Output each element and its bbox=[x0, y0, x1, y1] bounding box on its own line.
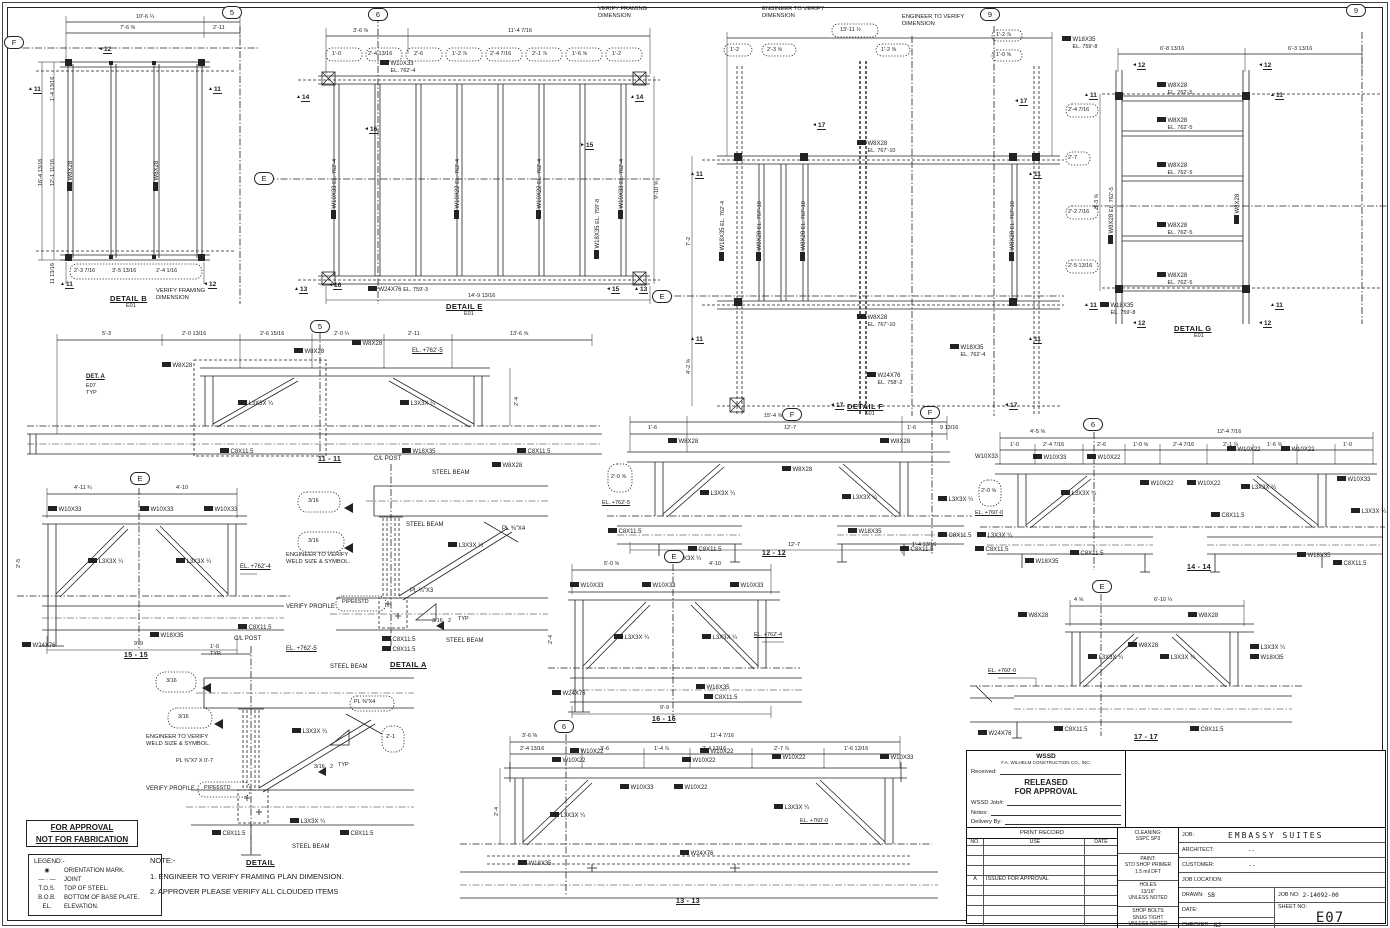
paint-cell: PAINT:STD SHOP PRIMER1.5 mil DFT bbox=[1118, 854, 1178, 880]
beam-label: W8X28 bbox=[1234, 194, 1242, 224]
weld-size-label: 3/16 bbox=[308, 538, 319, 544]
brace-label: L3X3X ¼ bbox=[88, 558, 123, 566]
beam-label: W8X28 EL. 762'-5 bbox=[1108, 187, 1116, 244]
clouded-dim: 2'-7 bbox=[1068, 155, 1077, 161]
el-abbrev: EL. bbox=[34, 903, 60, 912]
verify-profile-label: VERIFY PROFILE bbox=[146, 786, 195, 793]
dim-label: 9 13/16 bbox=[940, 425, 958, 431]
beam-label: W8X28EL. 762'-5 bbox=[1157, 117, 1192, 131]
panel-detail-f: 9 E F ENGINEER TO VERIFYDIMENSION ENGINE… bbox=[662, 6, 1064, 420]
received-blank-line bbox=[1000, 768, 1121, 775]
beam-label: W10X33 bbox=[975, 454, 998, 461]
section-marker: ◄12 bbox=[98, 46, 112, 53]
beam-label: W8X28EL. 767'-10 bbox=[857, 314, 895, 328]
job-row: JOB:EMBASSY SUITES bbox=[1179, 828, 1385, 843]
beam-label: W10X33 bbox=[48, 506, 82, 514]
dim-label: 1'-6 bbox=[907, 425, 916, 431]
verify-note: VERIFY FRAMINGDIMENSION bbox=[598, 6, 647, 20]
piece-mark-tag bbox=[696, 684, 705, 689]
job-bottom-grid: DRAWN:SB DATE: CHECKED:NJ JOB NO:2-14092… bbox=[1179, 888, 1385, 928]
dim-label: 2'-7 ⅞ bbox=[774, 746, 789, 752]
piece-mark-tag bbox=[1009, 252, 1014, 261]
dim-label: 5'-3 bbox=[102, 331, 111, 337]
legend-item: — · —JOINT bbox=[34, 876, 156, 885]
section-marker: ◄17 bbox=[830, 402, 844, 409]
wssd-job-blank-line bbox=[1007, 799, 1121, 806]
holes-cell: HOLES13/16"UNLESS NOTED bbox=[1118, 881, 1178, 907]
piece-mark-tag bbox=[620, 784, 629, 789]
dim-label: 2'-5 bbox=[16, 559, 22, 568]
dim-label: 2'-6 15/16 bbox=[260, 331, 284, 337]
piece-mark-tag bbox=[1211, 512, 1220, 517]
print-record-row bbox=[967, 896, 1117, 906]
detail-ref: E01 bbox=[1194, 333, 1204, 339]
col-date: DATE bbox=[1085, 839, 1117, 845]
piece-mark-tag bbox=[292, 728, 301, 733]
piece-mark-tag bbox=[1140, 480, 1149, 485]
beam-label: W8X28 EL. 767'-10 bbox=[1009, 201, 1017, 261]
section-marker: ◄16 bbox=[364, 126, 378, 133]
beam-label: W10X33 bbox=[204, 506, 238, 514]
piece-mark-tag bbox=[517, 448, 526, 453]
dim-label: 4'-2 ⅝ bbox=[686, 359, 692, 374]
beam-label: W8X28 bbox=[162, 362, 192, 370]
print-record-row-a: A ISSUED FOR APPROVAL bbox=[967, 876, 1117, 886]
beam-label: C8X11.5 bbox=[1070, 550, 1103, 558]
beam-label: W18X35 bbox=[696, 684, 730, 692]
piece-mark-tag bbox=[668, 438, 677, 443]
bolts-cell: SHOP BOLTSSNUG TIGHTUNLESS NOTED bbox=[1118, 907, 1178, 928]
section-marker: ▲11 bbox=[1084, 302, 1098, 309]
dim-label: 2'-4 bbox=[548, 635, 554, 644]
job-info-column: JOB:EMBASSY SUITES ARCHITECT:-- CUSTOMER… bbox=[1179, 828, 1385, 928]
typ-label: TYP bbox=[458, 616, 469, 622]
brace-label: L3X3X ¼ bbox=[774, 804, 809, 812]
piece-mark-tag bbox=[176, 558, 185, 563]
beam-label: W10X22 bbox=[552, 757, 586, 765]
beam-label: W18X35EL. 759'-8 bbox=[1062, 36, 1097, 50]
clouded-dim: 3'-5 13/16 bbox=[112, 268, 136, 274]
notes-block: NOTE:- 1. ENGINEER TO VERIFY FRAMING PLA… bbox=[150, 854, 410, 899]
piece-mark-tag bbox=[492, 462, 501, 467]
grid-bubble: 5 bbox=[310, 320, 330, 333]
dim-label: 4'-11 ¾ bbox=[74, 485, 92, 491]
weld-size-label: 3/16 bbox=[166, 678, 177, 684]
dim-label: 2'-0 13/16 bbox=[182, 331, 206, 337]
elevation-label: EL. +760'-0 bbox=[975, 510, 1003, 516]
panel-detail-g: 9 6'-8 13/16 6'-3 13/16 W18X35EL. 759'-8… bbox=[1062, 24, 1388, 340]
piece-mark-tag bbox=[1061, 490, 1070, 495]
dim-label: 7'-6 ⅜ bbox=[120, 25, 135, 31]
piece-mark-tag bbox=[1033, 454, 1042, 459]
piece-mark-tag bbox=[212, 830, 221, 835]
notes-blank-line bbox=[991, 809, 1121, 816]
plate-label: PL ⅜"X4 bbox=[354, 699, 375, 705]
clouded-dim: 2'-6 bbox=[414, 51, 423, 57]
piece-mark-tag bbox=[454, 210, 459, 219]
beam-label: W8X28 bbox=[668, 438, 698, 446]
cleaning-cell: CLEANING:SSPC SP3 bbox=[1118, 828, 1178, 854]
piece-mark-tag bbox=[220, 448, 229, 453]
verify-note: ENGINEER TO VERIFYDIMENSION bbox=[762, 6, 824, 20]
piece-mark-tag bbox=[448, 542, 457, 547]
drawing-sheet: F 5 10'-6 ¼ 7'-6 ⅜ 2'-11 16'-4 13/16 12'… bbox=[0, 0, 1390, 928]
stamp-line-1: FOR APPROVAL bbox=[31, 822, 133, 834]
print-record-table: PRINT RECORD NO. USE DATE A ISSUED FOR A… bbox=[967, 828, 1118, 928]
piece-mark-tag bbox=[331, 210, 336, 219]
piece-mark-tag bbox=[238, 400, 247, 405]
beam-label: W10X33 EL. 762'-4 bbox=[618, 159, 626, 219]
piece-mark-tag bbox=[978, 730, 987, 735]
piece-mark-tag bbox=[857, 140, 866, 145]
plate-label: PL ⅜"X7 X 0'-7 bbox=[176, 758, 213, 764]
sheet-number: E07 bbox=[1278, 910, 1382, 926]
section-marker: ▲11 bbox=[208, 86, 222, 93]
job-location-row: JOB LOCATION: bbox=[1179, 873, 1385, 888]
dim-label: 2'-11 bbox=[213, 25, 225, 31]
grid-bubble: 6 bbox=[554, 720, 574, 733]
rev-description: ISSUED FOR APPROVAL bbox=[984, 876, 1085, 885]
dim-label: 1'-4 ⅞ bbox=[654, 746, 669, 752]
beam-label: W18X35 bbox=[848, 528, 882, 536]
piece-mark-tag bbox=[618, 210, 623, 219]
piece-mark-tag bbox=[1227, 446, 1236, 451]
beam-label: W8X28 bbox=[1128, 642, 1158, 650]
section-title: 17 - 17 bbox=[1134, 734, 1158, 741]
piece-mark-tag bbox=[1157, 272, 1166, 277]
legend-item: EL.ELEVATION. bbox=[34, 903, 156, 912]
section-marker: ◄12 bbox=[1258, 320, 1272, 327]
piece-mark-tag bbox=[1351, 508, 1360, 513]
joint-line-icon: — · — bbox=[34, 876, 60, 885]
section-marker: ▲13 bbox=[294, 286, 308, 293]
received-label: Received: bbox=[971, 769, 997, 775]
piece-mark-tag bbox=[204, 506, 213, 511]
grid-bubble: E bbox=[652, 290, 672, 303]
beam-label: W10X22 bbox=[682, 757, 716, 765]
grid-bubble: E bbox=[130, 472, 150, 485]
beam-label: W24X76 bbox=[22, 642, 56, 650]
grid-bubble: E bbox=[254, 172, 274, 185]
beam-label: W10X22 EL. 762'-4 bbox=[536, 159, 544, 219]
piece-mark-tag bbox=[900, 546, 909, 551]
beam-label: W24X76 EL. 759'-3 bbox=[368, 286, 428, 294]
piece-mark-tag bbox=[552, 690, 561, 695]
piece-mark-tag bbox=[552, 757, 561, 762]
line-art bbox=[1062, 24, 1388, 340]
beam-label: W8X28 bbox=[153, 161, 161, 191]
piece-mark-tag bbox=[1188, 612, 1197, 617]
detail-title: DETAIL B bbox=[110, 294, 147, 303]
legend-box: LEGEND:- ◉ORIENTATION MARK. — · —JOINT T… bbox=[28, 854, 162, 916]
drawn-row: DRAWN:SB bbox=[1179, 888, 1274, 903]
grid-bubble: 6 bbox=[368, 8, 388, 21]
brace-label: L3X3X ¼ bbox=[1241, 484, 1276, 492]
legend-item: T.O.S.TOP OF STEEL. bbox=[34, 885, 156, 894]
beam-label: W10X33 bbox=[1033, 454, 1067, 462]
clouded-dim: 2'-1 ⅞ bbox=[532, 51, 547, 57]
piece-mark-tag bbox=[88, 558, 97, 563]
dim-label: 1'-6 bbox=[648, 425, 657, 431]
weld-note: 2 bbox=[330, 764, 333, 770]
beam-label: W18X35 bbox=[518, 860, 552, 868]
note-line: 2. APPROVER PLEASE VERIFY ALL CLOUDED IT… bbox=[150, 885, 410, 899]
dim-label: 2'-4 bbox=[494, 807, 500, 816]
beam-label: W8X28 bbox=[352, 340, 382, 348]
piece-mark-tag bbox=[140, 506, 149, 511]
beam-label: W8X28EL. 767'-10 bbox=[857, 140, 895, 154]
line-art bbox=[12, 326, 607, 466]
beam-label: W10X22 bbox=[1227, 446, 1261, 454]
tos-abbrev: T.O.S. bbox=[34, 885, 60, 894]
section-marker: ▲11 bbox=[28, 86, 42, 93]
panel-detail-e: 6 E 3'-6 ⅜ 11'-4 7/16 1'-0 2'-4 13/16 2'… bbox=[268, 14, 660, 314]
clouded-dim: 2'-0 ⅝ bbox=[981, 488, 996, 494]
clouded-dim: 2'-4 1/16 bbox=[156, 268, 177, 274]
piece-mark-tag bbox=[700, 748, 709, 753]
section-marker: ▲14 bbox=[296, 94, 310, 101]
dim-label: 13'-6 ⅝ bbox=[510, 331, 528, 337]
rev-letter: A bbox=[967, 876, 984, 885]
beam-label: C8X11.5 bbox=[975, 546, 1008, 554]
elevation-label: EL. +760'-0 bbox=[800, 818, 828, 824]
section-marker: ▲11 bbox=[60, 281, 74, 288]
detail-title: DETAIL F bbox=[847, 402, 883, 411]
line-art bbox=[268, 14, 660, 314]
piece-mark-tag bbox=[382, 646, 391, 651]
brace-label: L3X3X ¼ bbox=[550, 812, 585, 820]
piece-mark-tag bbox=[290, 818, 299, 823]
piece-mark-tag bbox=[1250, 654, 1259, 659]
dim-label: 10'-6 ¼ bbox=[136, 14, 154, 20]
beam-label: W10X22 bbox=[570, 748, 604, 756]
grid-bubble: 9 bbox=[980, 8, 1000, 21]
panel-detail-b: F 5 10'-6 ¼ 7'-6 ⅜ 2'-11 16'-4 13/16 12'… bbox=[8, 6, 266, 310]
detail-callout-ref: E07 bbox=[86, 383, 96, 389]
steel-beam-label: STEEL BEAM bbox=[432, 470, 469, 477]
detail-ref: E01 bbox=[865, 411, 875, 417]
clouded-dim: 1'-0 ⅝ bbox=[996, 52, 1011, 58]
beam-label: W10X22 bbox=[1087, 454, 1121, 462]
beam-label: W10X22 bbox=[772, 754, 806, 762]
piece-mark-tag bbox=[518, 860, 527, 865]
beam-label: W10X22 bbox=[674, 784, 708, 792]
brace-label: L3X3X ¼ bbox=[614, 634, 649, 642]
beam-label: W18X35 EL. 759'-8 bbox=[594, 199, 602, 259]
piece-mark-tag bbox=[67, 182, 72, 191]
beam-label: W8X28EL. 762'-5 bbox=[1157, 162, 1192, 176]
grid-bubble: F bbox=[4, 36, 24, 49]
dim-label: 2'-0 ¼ bbox=[334, 331, 349, 337]
piece-mark-tag bbox=[674, 784, 683, 789]
brace-label: L3X3X ¼ bbox=[977, 532, 1012, 540]
stamp-line-2: NOT FOR FABRICATION bbox=[31, 834, 133, 846]
beam-label: W10X33 bbox=[1337, 476, 1371, 484]
piece-mark-tag bbox=[867, 372, 876, 377]
piece-mark-tag bbox=[1062, 36, 1071, 41]
steel-beam-label: STEEL BEAM bbox=[292, 844, 329, 851]
weld-size-label: 3/16 bbox=[178, 714, 189, 720]
empty-cell bbox=[1126, 751, 1385, 827]
brace-label: L3X3X ¼ bbox=[702, 634, 737, 642]
beam-label: C8X11.5 bbox=[220, 448, 253, 456]
clouded-dim: 1'-2 bbox=[730, 47, 739, 53]
section-title: 13 - 13 bbox=[676, 898, 700, 905]
beam-label: W10X22 bbox=[1187, 480, 1221, 488]
beam-label: W18X35EL. 762'-4 bbox=[950, 344, 985, 358]
released-line-2: FOR APPROVAL bbox=[1015, 787, 1078, 796]
beam-label: W18X35 bbox=[1250, 654, 1284, 662]
legend-item: B.O.B.BOTTOM OF BASE PLATE. bbox=[34, 894, 156, 903]
piece-mark-tag bbox=[880, 754, 889, 759]
section-marker: ▲11 bbox=[1084, 92, 1098, 99]
piece-mark-tag bbox=[880, 438, 889, 443]
piece-mark-tag bbox=[1190, 726, 1199, 731]
beam-label: W24X76 bbox=[978, 730, 1012, 738]
dim-label: 6'-10 ¼ bbox=[1154, 597, 1172, 603]
dim-label: 4'-5 ⅜ bbox=[1030, 429, 1045, 435]
piece-mark-tag bbox=[400, 400, 409, 405]
dim-label: 12'-7 bbox=[788, 542, 800, 548]
piece-mark-tag bbox=[340, 830, 349, 835]
grid-bubble: E bbox=[664, 550, 684, 563]
dim-label: 4'-10 bbox=[176, 485, 188, 491]
dim-label: 12'-4 7/16 bbox=[1217, 429, 1241, 435]
piece-mark-tag bbox=[570, 748, 579, 753]
grid-bubble: F bbox=[782, 408, 802, 421]
panel-section-15: E 4'-11 ¾ 4'-10 W10X33 W10X33 W10X33 L3X… bbox=[12, 478, 292, 660]
beam-label: W10X22 bbox=[1281, 446, 1315, 454]
clouded-dim: 1'-2 bbox=[612, 51, 621, 57]
dim-label: 1'-0 bbox=[1010, 442, 1019, 448]
dim-label: 16'-4 13/16 bbox=[38, 159, 44, 186]
piece-mark-tag bbox=[688, 546, 697, 551]
beam-label: W18X35 bbox=[1025, 558, 1059, 566]
dim-label: 2'-6 bbox=[1097, 442, 1106, 448]
section-marker: ▲11 bbox=[690, 171, 704, 178]
brace-label: L3X3X ¼ bbox=[290, 818, 325, 826]
piece-mark-tag bbox=[570, 582, 579, 587]
brace-label: L3X3X ¼ bbox=[448, 542, 483, 550]
piece-mark-tag bbox=[1337, 476, 1346, 481]
piece-mark-tag bbox=[848, 528, 857, 533]
section-marker: ◄16 bbox=[328, 282, 342, 289]
dim-label: 2'-11 bbox=[408, 331, 420, 337]
detail-ref: E01 bbox=[126, 303, 136, 309]
brace-label: L3X3X ¼ bbox=[938, 496, 973, 504]
beam-label: C8X11.5 bbox=[688, 546, 721, 554]
dim-label: 12'-7 bbox=[784, 425, 796, 431]
line-art bbox=[962, 586, 1306, 742]
grid-bubble: E bbox=[1092, 580, 1112, 593]
job-no-row: JOB NO:2-14092-00 bbox=[1275, 888, 1385, 903]
piece-mark-tag bbox=[614, 634, 623, 639]
dim-label: 11'-4 7/16 bbox=[710, 733, 734, 739]
piece-mark-tag bbox=[680, 850, 689, 855]
beam-label: W18X35 bbox=[150, 632, 184, 640]
elevation-label: EL. +762'-4 bbox=[240, 564, 271, 571]
panel-section-12: F 15'-4 ⅜ 1'-6 12'-7 1'-6 9 13/16 W8X28 … bbox=[602, 404, 977, 560]
legend-item-label: JOINT bbox=[64, 876, 81, 885]
clouded-dim: 2'-3 7/16 bbox=[74, 268, 95, 274]
piece-mark-tag bbox=[938, 532, 947, 537]
piece-mark-tag bbox=[1018, 612, 1027, 617]
beam-label: C8X11.5 bbox=[1211, 512, 1244, 520]
sheet-no-cell: SHEET NO: E07 bbox=[1275, 903, 1385, 928]
beam-label: C8X11.5 bbox=[1333, 560, 1366, 568]
beam-label: W18X35 EL. 762'-4 bbox=[719, 201, 727, 261]
panel-section-16: E 5'-0 ⅝ 4'-10 W10X33 W10X33 W10X33 L3X3… bbox=[544, 556, 802, 726]
customer-row: CUSTOMER:-- bbox=[1179, 858, 1385, 873]
orientation-mark-icon: ◉ bbox=[34, 867, 60, 876]
piece-mark-tag bbox=[536, 210, 541, 219]
section-marker: ▲11 bbox=[1270, 92, 1284, 99]
plate-label: PL ⅜"X4 bbox=[502, 526, 525, 533]
beam-label: W10X33EL. 762'-4 bbox=[380, 60, 415, 74]
piece-mark-tag bbox=[642, 582, 651, 587]
section-title: 15 - 15 bbox=[124, 652, 148, 659]
clouded-dim: 2'-1 bbox=[386, 734, 395, 740]
dim-label: 9'-9 bbox=[660, 705, 669, 711]
brace-label: L3X3X ¼ bbox=[1088, 654, 1123, 662]
piece-mark-tag bbox=[238, 624, 247, 629]
piece-mark-tag bbox=[382, 636, 391, 641]
section-marker: ◄12 bbox=[1258, 62, 1272, 69]
piece-mark-tag bbox=[380, 60, 389, 65]
legend-item-label: ELEVATION. bbox=[64, 903, 98, 912]
piece-mark-tag bbox=[719, 252, 724, 261]
piece-mark-tag bbox=[1157, 117, 1166, 122]
piece-mark-tag bbox=[702, 634, 711, 639]
brace-label: L3X3X ¼ bbox=[1250, 644, 1285, 652]
dim-label: 6'-8 13/16 bbox=[1160, 46, 1184, 52]
piece-mark-tag bbox=[1187, 480, 1196, 485]
dim-label: 1'-4 13/16 bbox=[50, 77, 56, 101]
dim-label: 15'-4 ⅜ bbox=[764, 413, 782, 419]
clouded-dim: 1'-0 bbox=[332, 51, 341, 57]
beam-label: C8X11.5 bbox=[608, 528, 641, 536]
dim-label: 9'-10 ⅝ bbox=[654, 181, 660, 199]
beam-label: W10X33 bbox=[140, 506, 174, 514]
job-number: 2-14092-00 bbox=[1303, 892, 1339, 899]
beam-label: W8X28 bbox=[67, 161, 75, 191]
grid-bubble: 5 bbox=[222, 6, 242, 19]
beam-label: W8X28 bbox=[782, 466, 812, 474]
beam-label: W18X35 bbox=[1297, 552, 1331, 560]
piece-mark-tag bbox=[857, 314, 866, 319]
beam-label: C8X11.5 bbox=[938, 532, 971, 540]
section-marker: ►15 bbox=[580, 142, 594, 149]
print-record-row bbox=[967, 866, 1117, 876]
piece-mark-tag bbox=[1333, 560, 1342, 565]
section-marker: ◄12 bbox=[1132, 62, 1146, 69]
beam-label: W10X22 EL. 762'-4 bbox=[454, 159, 462, 219]
bob-abbrev: B.O.B. bbox=[34, 894, 60, 903]
dim-label: 1'-0 bbox=[210, 644, 219, 650]
piece-mark-tag bbox=[162, 362, 171, 367]
piece-mark-tag bbox=[782, 466, 791, 471]
elevation-label: EL. +760'-0 bbox=[988, 668, 1016, 674]
beam-label: C8X11.5 bbox=[517, 448, 550, 456]
beam-label: C8X11.5 bbox=[1054, 726, 1087, 734]
detail-title: DETAIL A bbox=[390, 660, 427, 669]
beam-label: W10X33 bbox=[642, 582, 676, 590]
released-line-1: RELEASED bbox=[1024, 778, 1068, 787]
section-title: 11 - 11 bbox=[318, 456, 341, 463]
section-title: 14 - 14 bbox=[1187, 564, 1211, 571]
print-record-row bbox=[967, 906, 1117, 916]
dim-label: 3'-6 ⅜ bbox=[353, 28, 368, 34]
